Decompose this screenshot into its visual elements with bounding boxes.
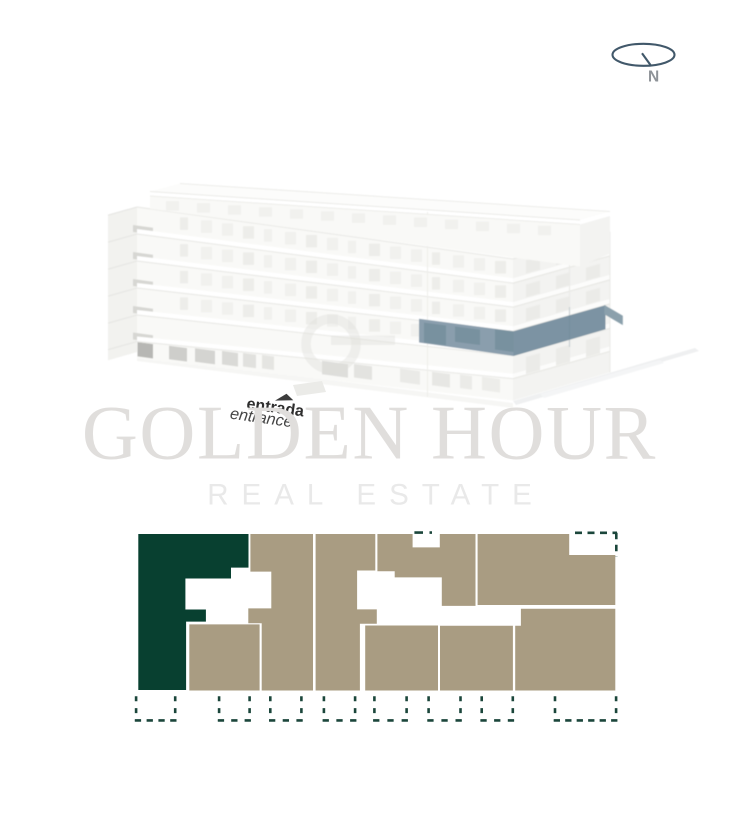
svg-text:REAL ESTATE: REAL ESTATE — [207, 479, 545, 512]
svg-text:N: N — [648, 69, 659, 86]
svg-text:GOLDEN HOUR: GOLDEN HOUR — [82, 390, 657, 476]
